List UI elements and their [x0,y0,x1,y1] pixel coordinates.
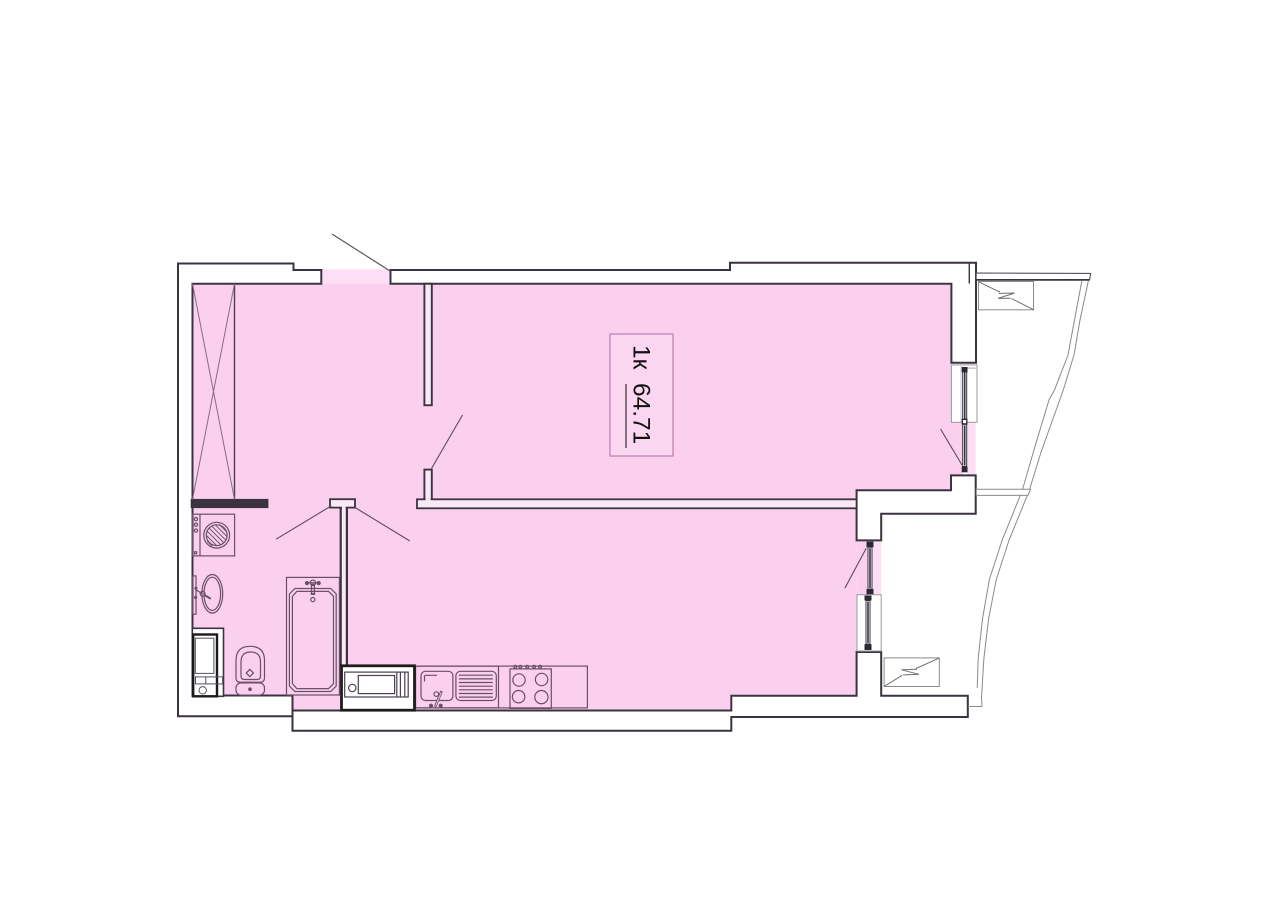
svg-text:1к: 1к [628,345,655,370]
svg-text:64.71: 64.71 [628,383,655,444]
